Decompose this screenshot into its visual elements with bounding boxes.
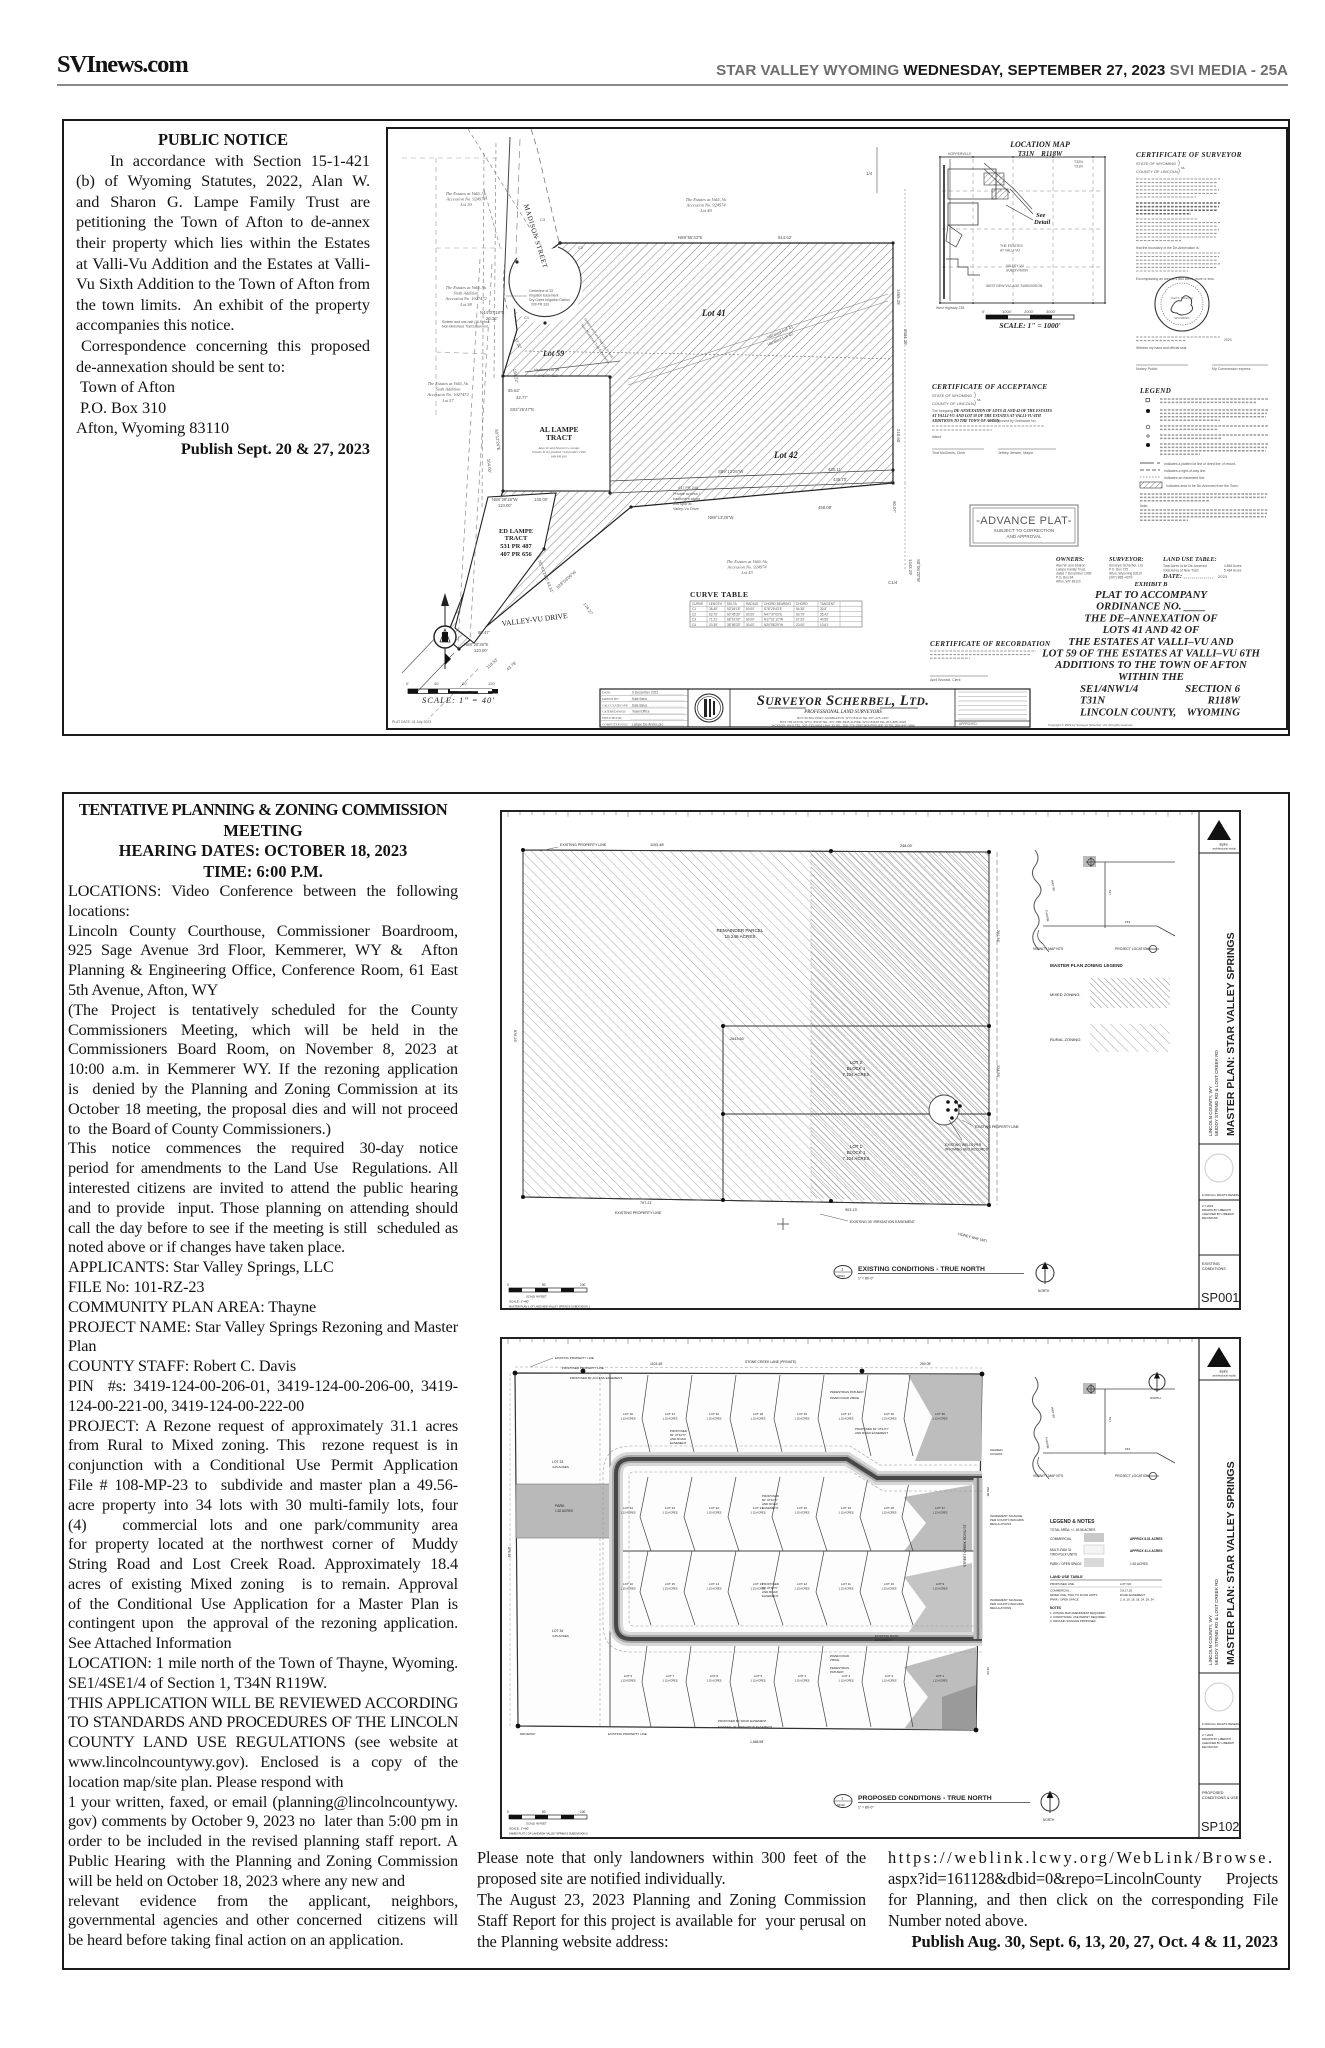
svg-text:Sixth Addition: Sixth Addition <box>436 387 462 392</box>
svg-text:1.15 ACRES: 1.15 ACRES <box>750 1679 765 1683</box>
svg-text:WESTVIEW VILLAGE SUBDIVISION: WESTVIEW VILLAGE SUBDIVISION <box>986 284 1043 288</box>
svg-text:Sixth Addition: Sixth Addition <box>454 291 480 296</box>
svg-text:1.15 ACRES: 1.15 ACRES <box>838 1417 853 1421</box>
svg-text:80.47': 80.47' <box>478 630 490 635</box>
svg-text:1.52 ACRES: 1.52 ACRES <box>1130 1562 1148 1566</box>
svg-text:Indicates area to be De-Annexe: Indicates area to be De-Annexed from the… <box>1166 484 1239 488</box>
svg-text:LOT 6: LOT 6 <box>624 1674 633 1678</box>
svg-text:407 PR 656: 407 PR 656 <box>500 551 532 558</box>
svg-text:LINCOLN COUNTY, WY: LINCOLN COUNTY, WY <box>1208 1615 1213 1665</box>
svg-text:JACKSON, WYO TEL. 307–733–5903: JACKSON, WYO TEL. 307–733–5903 LAVA, ID … <box>771 724 915 728</box>
svg-text:628°03'06"W: 628°03'06"W <box>555 569 578 590</box>
svg-text:WYOMING: WYOMING <box>1175 316 1191 320</box>
svg-text:Total Acres of New Tract: Total Acres of New Tract <box>1163 569 1199 573</box>
svg-text:Lot 41: Lot 41 <box>701 308 726 318</box>
svg-text:SP102: SP102 <box>1201 1819 1239 1834</box>
svg-text:914.62': 914.62' <box>778 235 792 240</box>
svg-text:10.61': 10.61' <box>820 623 829 627</box>
svg-text:1465.25': 1465.25' <box>896 289 901 306</box>
svg-text:ss.: ss. <box>1181 166 1185 170</box>
svg-text:71.22': 71.22' <box>709 618 718 622</box>
svg-text:50: 50 <box>542 1283 546 1287</box>
svg-text:LOTS 41 AND 42 OF: LOTS 41 AND 42 OF <box>1102 624 1201 636</box>
svg-text:CURVE: CURVE <box>692 602 703 606</box>
svg-text:100: 100 <box>580 1810 586 1814</box>
svg-text:PROJECT LOCATION: PROJECT LOCATION <box>1115 947 1149 951</box>
svg-text:LOT 37: LOT 37 <box>935 1506 945 1510</box>
svg-text:60.00': 60.00' <box>746 612 755 616</box>
svg-text:PROJECT LOCATION: PROJECT LOCATION <box>1115 1474 1149 1478</box>
svg-text:BLOCK 1: BLOCK 1 <box>847 1150 866 1155</box>
svg-text:N17°01'12"W: N17°01'12"W <box>764 618 783 622</box>
svg-text:0: 0 <box>507 1810 509 1814</box>
svg-text:C1: C1 <box>692 607 696 611</box>
svg-text:1.15 ACRES: 1.15 ACRES <box>838 1511 853 1515</box>
svg-text:VALLEY-VU: VALLEY-VU <box>1006 264 1025 268</box>
svg-text:REVISIONS: REVISIONS <box>1202 1216 1218 1220</box>
svg-text:1" = 80'-0": 1" = 80'-0" <box>858 1277 874 1281</box>
svg-text:53°04'15": 53°04'15" <box>727 607 741 611</box>
svg-text:LOT 15: LOT 15 <box>665 1582 675 1586</box>
svg-text:1.15 ACRES: 1.15 ACRES <box>750 1417 765 1421</box>
svg-text:EXISTING PROPERTY LINE: EXISTING PROPERTY LINE <box>608 1732 647 1736</box>
svg-text:TWO-PLEX UNITS: TWO-PLEX UNITS <box>1050 1553 1077 1557</box>
svg-text:SE1/4NW1/4: SE1/4NW1/4 <box>1080 683 1139 695</box>
svg-text:MIXED USE, TWO TO FOUR UNITS: MIXED USE, TWO TO FOUR UNITS <box>1050 1593 1097 1597</box>
svg-text:ACCESS: ACCESS <box>990 1452 1002 1456</box>
svg-text:C3: C3 <box>540 217 546 222</box>
svg-text:1.15 ACRES: 1.15 ACRES <box>620 1417 635 1421</box>
svg-text:Valley-Vu Drive: Valley-Vu Drive <box>673 507 699 511</box>
svg-text:Non-Motorized Trail Easement: Non-Motorized Trail Easement <box>442 325 488 329</box>
svg-text:THE DE–ANNEXATION OF: THE DE–ANNEXATION OF <box>1084 612 1218 624</box>
svg-text:PATHWAY: PATHWAY <box>830 1670 844 1674</box>
svg-text:PARK / OPEN SPACE: PARK / OPEN SPACE <box>1050 1598 1079 1602</box>
svg-text:WITHIN THE: WITHIN THE <box>1118 671 1184 683</box>
svg-text:AND APPROVAL: AND APPROVAL <box>1006 534 1042 539</box>
svg-text:was approved by Ordinance No.: was approved by Ordinance No. <box>988 419 1036 423</box>
svg-text:April Brunski, Clerk: April Brunski, Clerk <box>930 678 961 682</box>
svg-text:N89°13'28"W: N89°13'28"W <box>708 515 735 520</box>
svg-text:THAYNE: THAYNE <box>1044 909 1050 921</box>
svg-text:Jeffrey Jensen, Mayor: Jeffrey Jensen, Mayor <box>998 451 1034 455</box>
svg-text:7.104 ACRES: 7.104 ACRES <box>842 1156 869 1161</box>
svg-text:7.104 ACRES: 7.104 ACRES <box>842 1072 869 1077</box>
svg-text:The Estates at Valli–Vu: The Estates at Valli–Vu <box>446 191 488 196</box>
svg-text:210.60': 210.60' <box>896 429 901 443</box>
svg-text:MUDDY STRING RD & LOST CREEK: MUDDY STRING RD & LOST CREEK RD <box>1214 1049 1219 1136</box>
svg-text:VICINITY MAP NTS: VICINITY MAP NTS <box>1033 947 1064 951</box>
svg-text:CHORD: CHORD <box>796 602 808 606</box>
svg-text:West Highway 238: West Highway 238 <box>936 306 964 310</box>
svg-text:1.15 ACRES: 1.15 ACRES <box>932 1511 947 1515</box>
svg-text:64.00: 64.00 <box>986 1667 990 1675</box>
svg-text:PEDESTRIAN PATHWAY: PEDESTRIAN PATHWAY <box>830 1390 864 1394</box>
svg-text:HOPPERVILLE: HOPPERVILLE <box>948 152 972 156</box>
svg-text:SCALE: 1" = 40': SCALE: 1" = 40' <box>422 695 495 705</box>
svg-text:VICINITY MAP NTS: VICINITY MAP NTS <box>1033 1474 1064 1478</box>
svg-text:PROPOSED 60' ROAD EASEMENT: PROPOSED 60' ROAD EASEMENT <box>718 1719 767 1723</box>
svg-text:EXISTING: EXISTING <box>1202 1262 1220 1266</box>
svg-text:EXISTING PROPERTY LINE: EXISTING PROPERTY LINE <box>555 1356 594 1360</box>
svg-text:517: 517 <box>1108 890 1112 895</box>
svg-text:Notary Public: Notary Public <box>1136 367 1158 371</box>
svg-text:120': 120' <box>488 681 496 686</box>
svg-text:R118W: R118W <box>1207 695 1242 707</box>
svg-text:ADDITIONS TO THE TOWN OF AFTON: ADDITIONS TO THE TOWN OF AFTON <box>1054 659 1248 671</box>
svg-text:S0°12'24"E: S0°12'24"E <box>494 429 501 451</box>
svg-text:EXISTING CONDITIONS - TRUE NOR: EXISTING CONDITIONS - TRUE NORTH <box>858 1266 985 1273</box>
svg-text:60°45'30": 60°45'30" <box>727 612 741 616</box>
svg-text:Lot 43: Lot 43 <box>740 570 753 575</box>
svg-text:Detail: Detail <box>1033 219 1050 226</box>
svg-text:LOT 23: LOT 23 <box>665 1506 675 1510</box>
svg-text:C3: C3 <box>692 618 696 622</box>
svg-text:435.70': 435.70' <box>833 477 847 482</box>
svg-text:BLOCK 1: BLOCK 1 <box>847 1066 866 1071</box>
svg-text:SCALE IN FEET: SCALE IN FEET <box>526 1295 547 1299</box>
svg-text:LOT 16: LOT 16 <box>884 1582 894 1586</box>
svg-text:SURVEYOR SCHERBEL, LTD.: SURVEYOR SCHERBEL, LTD. <box>757 693 930 709</box>
svg-text:T32N: T32N <box>1074 160 1083 164</box>
svg-text:PROPOSED: PROPOSED <box>1202 1791 1224 1795</box>
svg-text:LOT 4: LOT 4 <box>798 1674 807 1678</box>
svg-text:35.42': 35.42' <box>820 612 829 616</box>
svg-text:SUBDIVISION: SUBDIVISION <box>1006 269 1028 273</box>
svg-text:THAYNE: THAYNE <box>1044 1436 1050 1448</box>
svg-text:T31N: T31N <box>1074 165 1083 169</box>
svg-text:2, 8, 10, 16, 18, 24, 26, 34: 2, 8, 10, 16, 18, 24, 26, 34 <box>1120 1598 1154 1602</box>
svg-text:COUNTY OF LINCOLN: COUNTY OF LINCOLN <box>932 401 974 406</box>
svg-text:N88°28'26"E: N88°28'26"E <box>464 642 489 647</box>
svg-text:EASEMENT: EASEMENT <box>762 1506 779 1510</box>
svg-text:1.15 ACRES: 1.15 ACRES <box>706 1679 721 1683</box>
svg-text:4.864 Acres: 4.864 Acres <box>1224 564 1242 568</box>
svg-text:LOT 34: LOT 34 <box>552 1629 563 1633</box>
svg-text:LOT 1: LOT 1 <box>850 1144 863 1149</box>
svg-text:APPROX 8.01 ACRES: APPROX 8.01 ACRES <box>1130 1537 1162 1541</box>
svg-text:Afton, WY 83110: Afton, WY 83110 <box>1056 580 1081 584</box>
svg-text:1.15 ACRES: 1.15 ACRES <box>881 1511 896 1515</box>
svg-text:EASEMENT: EASEMENT <box>875 1638 892 1642</box>
svg-text:NORTH: NORTH <box>1038 1289 1050 1293</box>
svg-text:LOT 30: LOT 30 <box>623 1412 633 1416</box>
svg-text:2023.: 2023. <box>1224 338 1233 342</box>
svg-text:Accession No. 924974: Accession No. 924974 <box>685 203 726 208</box>
svg-text:Accession No. 1027472: Accession No. 1027472 <box>444 296 487 301</box>
svg-text:SCALE: 1"=80': SCALE: 1"=80' <box>509 1827 529 1831</box>
svg-text:DRAWN BY:: DRAWN BY: <box>601 697 619 701</box>
svg-text:# 2023 ALL RIGHTS RESERVED: # 2023 ALL RIGHTS RESERVED <box>1202 1722 1241 1726</box>
svg-text:NORTH: NORTH <box>1150 1396 1161 1400</box>
svg-text:ORDINANCE NO. ____: ORDINANCE NO. ____ <box>1096 601 1205 613</box>
svg-text:S03°26'47"E: S03°26'47"E <box>510 407 534 412</box>
svg-text:SCALE: 1"=80': SCALE: 1"=80' <box>509 1300 529 1304</box>
svg-text:EXISTING WELLS PER: EXISTING WELLS PER <box>945 1143 982 1147</box>
svg-text:DELTA: DELTA <box>727 602 738 606</box>
svg-text:STATE OF WYOMING: STATE OF WYOMING <box>932 393 972 398</box>
svg-text:LOT 11: LOT 11 <box>841 1582 851 1586</box>
svg-text:40.56': 40.56' <box>820 618 829 622</box>
svg-text:LOT 9: LOT 9 <box>936 1582 945 1586</box>
svg-text:430.11': 430.11' <box>828 467 842 472</box>
svg-text:this spur at: this spur at <box>673 502 693 506</box>
svg-text:TOTAL AREA: +/- 49.56 ACRES: TOTAL AREA: +/- 49.56 ACRES <box>1050 1528 1095 1532</box>
svg-text:250.05': 250.05' <box>920 1362 931 1366</box>
svg-text:PROPOSED 60' ACCESS EASEMENT: PROPOSED 60' ACCESS EASEMENT <box>570 1376 622 1380</box>
svg-text:RADIUS: RADIUS <box>746 602 758 606</box>
svg-text:C1/4: C1/4 <box>888 580 898 585</box>
svg-text:EASEMENT: EASEMENT <box>762 1594 779 1598</box>
svg-text:N47°37'03"E: N47°37'03"E <box>764 612 782 616</box>
svg-text:-ADVANCE PLAT-: -ADVANCE PLAT- <box>976 515 1072 527</box>
svg-text:ANNEX PLAT 1 OF LAKEVIEW VALLE: ANNEX PLAT 1 OF LAKEVIEW VALLEY SPRINGS … <box>509 1832 588 1836</box>
svg-text:(307) 885–4379: (307) 885–4379 <box>1109 576 1132 580</box>
svg-text:50: 50 <box>542 1810 546 1814</box>
svg-text:1.15 ACRES: 1.15 ACRES <box>881 1417 896 1421</box>
svg-text:STATE OF WYOMING: STATE OF WYOMING <box>1136 161 1176 166</box>
svg-text:CERTIFICATE OF SURVEYOR: CERTIFICATE OF SURVEYOR <box>1136 151 1242 159</box>
svg-text:2000': 2000' <box>1024 309 1034 314</box>
svg-text:STREET CREEK RD/VU ST: STREET CREEK RD/VU ST <box>963 1524 967 1567</box>
svg-text:LOT 12: LOT 12 <box>797 1582 807 1586</box>
svg-text:648 PR 810: 648 PR 810 <box>538 374 558 378</box>
svg-text:903.13': 903.13' <box>845 1208 858 1212</box>
svg-text:1000': 1000' <box>1002 309 1012 314</box>
svg-text:EASEMENT: EASEMENT <box>670 1441 687 1445</box>
svg-text:My Commission expires:: My Commission expires: <box>1212 367 1251 371</box>
svg-text:Kale Beus: Kale Beus <box>632 697 647 701</box>
svg-text:HWY 89: HWY 89 <box>1050 1406 1056 1418</box>
svg-text:The Estates at Valli–Vu: The Estates at Valli–Vu <box>727 559 769 564</box>
svg-text:LOT 3: LOT 3 <box>842 1674 851 1678</box>
svg-text:C2: C2 <box>578 245 584 250</box>
svg-text:LOT 59 OF THE ESTATES AT VALLI: LOT 59 OF THE ESTATES AT VALLI–VU 6TH <box>1041 648 1260 660</box>
svg-text:RURAL ZONING:: RURAL ZONING: <box>1050 1037 1081 1042</box>
svg-text:1.15 ACRES: 1.15 ACRES <box>932 1679 947 1683</box>
svg-text:MASTER PLAN: STAR VALLEY SPRIN: MASTER PLAN: STAR VALLEY SPRINGS <box>1225 1461 1237 1665</box>
svg-text:1: 1 <box>841 1267 844 1272</box>
svg-text:174.37': 174.37' <box>582 602 594 616</box>
svg-text:38.45': 38.45' <box>709 607 718 611</box>
svg-text:LOT 28: LOT 28 <box>753 1412 763 1416</box>
svg-text:Indicates an easement line.: Indicates an easement line. <box>1164 476 1205 480</box>
svg-text:1.15 ACRES: 1.15 ACRES <box>932 1417 947 1421</box>
svg-text:2634.25': 2634.25' <box>903 329 908 346</box>
svg-text:LINCOLN COUNTY, WY: LINCOLN COUNTY, WY <box>1208 1086 1213 1136</box>
svg-text:1/4: 1/4 <box>866 171 873 176</box>
svg-text:63.70': 63.70' <box>709 612 718 616</box>
svg-text:876.16': 876.16' <box>513 1030 517 1043</box>
svg-text:60.75': 60.75' <box>796 612 805 616</box>
svg-text:Centerline of 33': Centerline of 33' <box>529 289 554 293</box>
svg-text:0': 0' <box>406 681 409 686</box>
svg-text:PLAT DATE: 01 July 2023: PLAT DATE: 01 July 2023 <box>392 720 431 724</box>
svg-text:REGULATIONS: REGULATIONS <box>990 1522 1011 1526</box>
svg-text:HWY 89: HWY 89 <box>1050 879 1056 891</box>
svg-text:Witness my hand and offici: Witness my hand and official seal. <box>1136 346 1187 350</box>
svg-text:Lot 57: Lot 57 <box>441 398 454 403</box>
svg-text:1.15 ACRES: 1.15 ACRES <box>750 1511 765 1515</box>
svg-text:1.15 ACRES: 1.15 ACRES <box>662 1417 677 1421</box>
svg-text:EXISTING 30' IRRIGATION EASEME: EXISTING 30' IRRIGATION EASEMENT <box>850 1220 916 1224</box>
svg-text:EXISTING PROPERTY LINE: EXISTING PROPERTY LINE <box>560 843 607 847</box>
svg-text:# 2023 ALL RIGHTS RESERVED: # 2023 ALL RIGHTS RESERVED <box>1202 1193 1241 1197</box>
svg-text:15.248 ACRES: 15.248 ACRES <box>725 934 756 939</box>
svg-text:1.15 ACRES: 1.15 ACRES <box>794 1679 809 1683</box>
svg-text:Accession No. 924974: Accession No. 924974 <box>445 197 486 202</box>
svg-text:PROPOSED USE: PROPOSED USE <box>1050 1582 1074 1586</box>
svg-text:110.00': 110.00' <box>498 503 512 508</box>
svg-text:LAND USE TABLE: LAND USE TABLE <box>1050 1575 1083 1579</box>
svg-text:DATE:: DATE: <box>601 691 611 695</box>
svg-text:COMMERCIAL: COMMERCIAL <box>1050 1589 1070 1593</box>
svg-text:HONEY WAY (40'): HONEY WAY (40') <box>958 1232 988 1243</box>
svg-text:Lot 30: Lot 30 <box>459 202 472 207</box>
svg-text:LOT 19: LOT 19 <box>841 1506 851 1510</box>
svg-text:4.05 ACRES: 4.05 ACRES <box>552 1465 569 1469</box>
svg-text:SP001: SP001 <box>1201 1290 1239 1305</box>
svg-text:LOT 32: LOT 32 <box>709 1412 719 1416</box>
svg-text:NORTH: NORTH <box>1043 1818 1055 1822</box>
svg-text:Sixteen and one-half (16.5) fo: Sixteen and one-half (16.5) foot <box>442 320 490 324</box>
svg-text:architectural studio: architectural studio <box>1213 847 1237 851</box>
svg-text:See: See <box>1036 212 1046 219</box>
svg-text:EXHIBIT B: EXHIBIT B <box>1133 581 1168 588</box>
svg-text:REVISIONS: REVISIONS <box>1202 1745 1218 1749</box>
svg-text:The Estates at Valli–Vu: The Estates at Valli–Vu <box>686 197 728 202</box>
svg-text:C4: C4 <box>692 623 696 627</box>
svg-text:easement along: easement along <box>673 497 700 501</box>
svg-text:Team/Office: Team/Office <box>632 710 650 714</box>
svg-text:Lampe De-Annex.pro: Lampe De-Annex.pro <box>632 722 664 726</box>
svg-text:437 PR 248: 437 PR 248 <box>678 486 698 490</box>
svg-text:LOT 26: LOT 26 <box>884 1412 894 1416</box>
svg-text:LOT 8: LOT 8 <box>710 1674 719 1678</box>
svg-text:N20°56'29"W: N20°56'29"W <box>764 623 783 627</box>
svg-text:1.15 ACRES: 1.15 ACRES <box>794 1511 809 1515</box>
svg-text:MULTI-FAM 31: MULTI-FAM 31 <box>1050 1548 1072 1552</box>
svg-text:CHORD BEARING: CHORD BEARING <box>764 602 791 606</box>
svg-text:NOTES: NOTES <box>1050 1606 1061 1610</box>
svg-text:3. GROUND SIGNAGE PROPOSED: 3. GROUND SIGNAGE PROPOSED <box>1050 1619 1096 1623</box>
svg-text:Accession No. 1027472: Accession No. 1027472 <box>426 392 469 397</box>
svg-text:1: 1 <box>841 1796 844 1801</box>
svg-text:REMAINDER PARCEL: REMAINDER PARCEL <box>717 928 764 933</box>
svg-text:153: 153 <box>1125 1447 1130 1451</box>
svg-text:VALLEY-VU DRIVE: VALLEY-VU DRIVE <box>501 611 568 628</box>
svg-text:1103.48': 1103.48' <box>650 1362 663 1366</box>
svg-text:S89°12'26"W: S89°12'26"W <box>718 469 744 474</box>
svg-text:CURVE TABLE: CURVE TABLE <box>690 590 749 599</box>
svg-text:LOT 18: LOT 18 <box>884 1506 894 1510</box>
svg-text:3,9,17,25: 3,9,17,25 <box>1120 1589 1132 1593</box>
svg-text:1.15 ACRES: 1.15 ACRES <box>620 1511 635 1515</box>
svg-text:Tina McGinnis, Clerk: Tina McGinnis, Clerk <box>932 451 965 455</box>
svg-text:Karl F. Scherbel: Karl F. Scherbel <box>1171 296 1193 300</box>
svg-text:CALCULATED BY:: CALCULATED BY: <box>602 703 628 707</box>
svg-text:Copyright © 2022 by Surveyor S: Copyright © 2022 by Surveyor Scherbel, L… <box>1048 723 1133 727</box>
svg-text:COMPUTER FILE:: COMPUTER FILE: <box>602 722 628 726</box>
svg-text:LENGTH: LENGTH <box>709 602 723 606</box>
svg-text:APPROX 41.4 ACRES: APPROX 41.4 ACRES <box>1130 1549 1162 1553</box>
svg-text:20.39': 20.39' <box>709 623 718 627</box>
svg-text:MASTER PLAN: STAR VALLEY SPRIN: MASTER PLAN: STAR VALLEY SPRINGS <box>1225 932 1237 1136</box>
svg-text:LOT 31: LOT 31 <box>665 1412 675 1416</box>
svg-text:648 PR 810: 648 PR 810 <box>551 454 567 458</box>
svg-text:ss.: ss. <box>977 398 981 402</box>
svg-text:SP001: SP001 <box>837 1274 845 1278</box>
svg-text:N88°28'26"W: N88°28'26"W <box>492 497 519 502</box>
svg-text:1.15 ACRES: 1.15 ACRES <box>794 1587 809 1591</box>
svg-text:2023: 2023 <box>1218 574 1228 579</box>
svg-text:0': 0' <box>982 309 985 314</box>
svg-text:DATE:: DATE: <box>1162 573 1182 580</box>
svg-text:110.00': 110.00' <box>474 648 488 653</box>
svg-text:The foregoing: The foregoing <box>932 409 953 413</box>
svg-text:ROAD EASEMENT: ROAD EASEMENT <box>1120 1593 1145 1597</box>
svg-text:LOT 22: LOT 22 <box>709 1506 719 1510</box>
svg-text:118.53': 118.53' <box>485 657 499 670</box>
svg-text:T31N: T31N <box>1080 695 1106 707</box>
svg-text:AT VALLI-VU: AT VALLI-VU <box>1000 249 1020 253</box>
svg-text:SURVEYOR:: SURVEYOR: <box>1109 556 1144 563</box>
svg-text:PAVED ROAD 2'BIKE: PAVED ROAD 2'BIKE <box>830 1396 859 1400</box>
svg-text:APPROVED:: APPROVED: <box>959 722 978 726</box>
svg-text:43.78': 43.78' <box>505 660 517 672</box>
svg-text:1.15 ACRES: 1.15 ACRES <box>620 1587 635 1591</box>
svg-text:531 PR 487: 531 PR 487 <box>500 543 532 550</box>
svg-text:CONDITIONS & USE: CONDITIONS & USE <box>1202 1796 1239 1800</box>
svg-text:PROPOSED CONDITIONS - TRUE NOR: PROPOSED CONDITIONS - TRUE NORTH <box>858 1795 992 1802</box>
svg-text:2'BIKE: 2'BIKE <box>830 1658 839 1662</box>
svg-text:FIELD BOOK:: FIELD BOOK: <box>601 716 622 720</box>
svg-text:LOT 33: LOT 33 <box>552 1460 563 1464</box>
svg-text:LOT 35: LOT 35 <box>935 1412 945 1416</box>
svg-text:DE-ANNEXATION OF LOTS 41 AND 4: DE-ANNEXATION OF LOTS 41 AND 42 OF THE E… <box>953 409 1052 413</box>
svg-text:20.00': 20.00' <box>796 623 805 627</box>
svg-text:1103.48': 1103.48' <box>650 843 664 847</box>
svg-text:5.484 Acres: 5.484 Acres <box>1224 569 1242 573</box>
svg-text:LOT 24: LOT 24 <box>623 1506 633 1510</box>
svg-text:LOT 27: LOT 27 <box>841 1412 851 1416</box>
svg-text:THE ESTATES AT VALLI–VU AND: THE ESTATES AT VALLI–VU AND <box>1068 636 1233 648</box>
svg-text:LAND USE TABLE:: LAND USE TABLE: <box>1162 556 1217 563</box>
svg-text:SCALE: 1" = 1000': SCALE: 1" = 1000' <box>999 321 1060 330</box>
svg-text:1.15 ACRES: 1.15 ACRES <box>706 1511 721 1515</box>
svg-text:LOT 2: LOT 2 <box>885 1674 894 1678</box>
svg-text:EXISTING PROPERTY LINE: EXISTING PROPERTY LINE <box>615 1211 662 1215</box>
svg-text:67.20': 67.20' <box>796 618 805 622</box>
svg-text:TRACT: TRACT <box>546 433 572 442</box>
svg-text:PROFESSIONAL LAND SURVEYORS: PROFESSIONAL LAND SURVEYORS <box>803 710 882 715</box>
svg-text:PLAT TO ACCOMPANY: PLAT TO ACCOMPANY <box>1095 589 1208 601</box>
svg-text:517: 517 <box>1108 1417 1112 1422</box>
svg-text:Lot 59: Lot 59 <box>542 349 564 358</box>
svg-text:S0°06'20"W: S0°06'20"W <box>916 559 921 583</box>
svg-text:S76°25'43"E: S76°25'43"E <box>764 607 782 611</box>
svg-text:SECTION 6: SECTION 6 <box>1185 683 1240 695</box>
svg-text:C2: C2 <box>692 612 696 616</box>
svg-text:that the boundary of the: that the boundary of the De-Annexation i… <box>1136 246 1200 250</box>
svg-text:SCALE IN FEET: SCALE IN FEET <box>526 1822 547 1826</box>
svg-text:Lot 40: Lot 40 <box>699 208 712 213</box>
svg-text:164.00': 164.00' <box>486 459 492 474</box>
svg-text:LOT 10: LOT 10 <box>623 1582 633 1586</box>
svg-text:Vacated Lot 59: Vacated Lot 59 <box>534 368 559 372</box>
svg-text:LOCATION MAP: LOCATION MAP <box>1009 140 1070 149</box>
svg-text:PARK / OPEN SPACE: PARK / OPEN SPACE <box>1050 1562 1082 1566</box>
